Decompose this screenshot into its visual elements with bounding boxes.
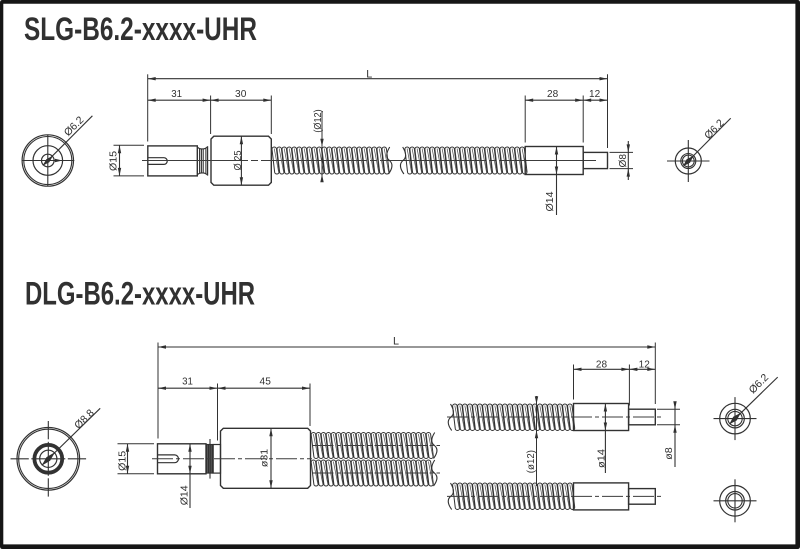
svg-text:28: 28 (596, 358, 607, 370)
svg-text:Ø15: Ø15 (108, 151, 120, 171)
svg-text:(Ø12): (Ø12) (312, 109, 324, 132)
svg-text:DLG-B6.2-xxxx-UHR: DLG-B6.2-xxxx-UHR (25, 276, 255, 312)
svg-text:30: 30 (235, 88, 246, 100)
svg-text:Ø15: Ø15 (117, 451, 129, 471)
svg-text:(ø12): (ø12) (525, 450, 537, 473)
svg-text:Ø14: Ø14 (544, 191, 556, 211)
svg-text:L: L (393, 335, 399, 347)
svg-text:ø14: ø14 (595, 449, 607, 468)
svg-text:28: 28 (547, 88, 558, 100)
svg-text:31: 31 (182, 375, 193, 387)
svg-text:12: 12 (639, 358, 650, 370)
svg-text:45: 45 (260, 375, 271, 387)
svg-text:31: 31 (171, 88, 182, 100)
svg-text:SLG-B6.2-xxxx-UHR: SLG-B6.2-xxxx-UHR (24, 11, 257, 47)
svg-text:ø31: ø31 (259, 449, 271, 467)
svg-text:Ø8: Ø8 (617, 154, 629, 168)
svg-text:Ø14: Ø14 (179, 485, 191, 505)
svg-text:Ø 25: Ø 25 (232, 150, 244, 170)
svg-text:12: 12 (589, 88, 600, 100)
svg-text:ø8: ø8 (663, 447, 675, 460)
svg-text:L: L (366, 68, 372, 80)
